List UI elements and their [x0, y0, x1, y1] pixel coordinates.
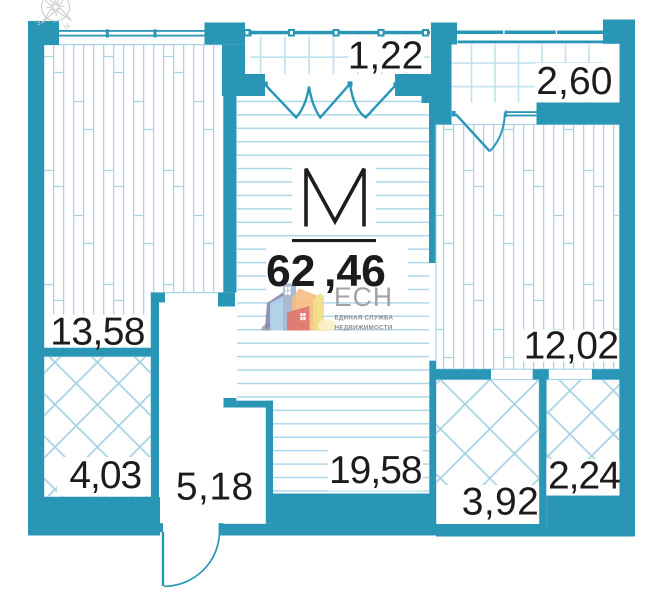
svg-text:12,02: 12,02 [524, 324, 619, 367]
svg-text:2,60: 2,60 [536, 60, 612, 103]
svg-text:2,24: 2,24 [548, 455, 620, 498]
svg-text:НЕДВИЖИМОСТИ: НЕДВИЖИМОСТИ [335, 324, 393, 331]
svg-text:62,46: 62,46 [266, 247, 386, 296]
svg-text:19,58: 19,58 [329, 449, 422, 492]
svg-text:ЕДИНАЯ СЛУЖБА: ЕДИНАЯ СЛУЖБА [335, 314, 394, 321]
svg-text:3,92: 3,92 [462, 481, 540, 524]
svg-text:13,58: 13,58 [50, 310, 145, 353]
svg-text:5,18: 5,18 [176, 466, 254, 509]
svg-text:1,22: 1,22 [348, 35, 424, 78]
svg-text:4,03: 4,03 [69, 454, 141, 497]
